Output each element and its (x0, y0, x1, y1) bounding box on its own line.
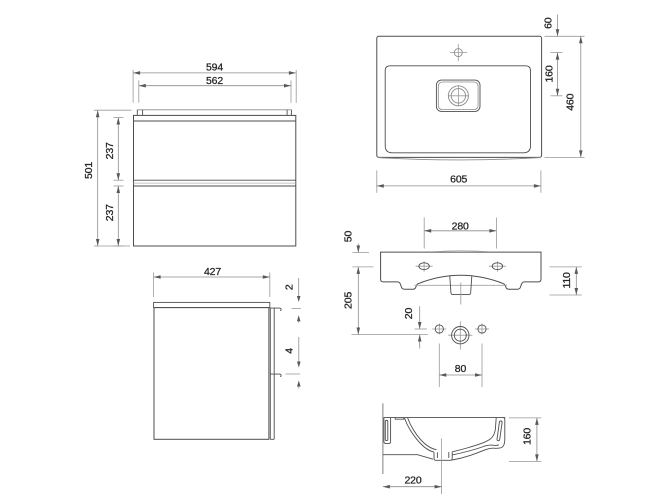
svg-text:60: 60 (543, 17, 555, 29)
svg-text:205: 205 (342, 292, 354, 309)
svg-text:2: 2 (284, 284, 296, 290)
svg-text:220: 220 (404, 475, 421, 487)
svg-text:4: 4 (284, 348, 296, 354)
svg-text:501: 501 (83, 162, 95, 179)
svg-text:237: 237 (104, 142, 116, 159)
svg-text:562: 562 (206, 75, 223, 87)
svg-text:280: 280 (452, 220, 469, 232)
svg-text:80: 80 (455, 363, 467, 375)
svg-text:160: 160 (522, 428, 534, 445)
svg-text:20: 20 (403, 308, 415, 320)
svg-text:237: 237 (104, 204, 116, 221)
svg-text:160: 160 (543, 65, 555, 82)
svg-text:460: 460 (565, 93, 577, 110)
svg-text:110: 110 (561, 272, 573, 289)
svg-text:427: 427 (204, 266, 221, 278)
svg-text:594: 594 (206, 62, 223, 74)
svg-text:605: 605 (450, 173, 467, 185)
svg-text:50: 50 (342, 231, 354, 243)
